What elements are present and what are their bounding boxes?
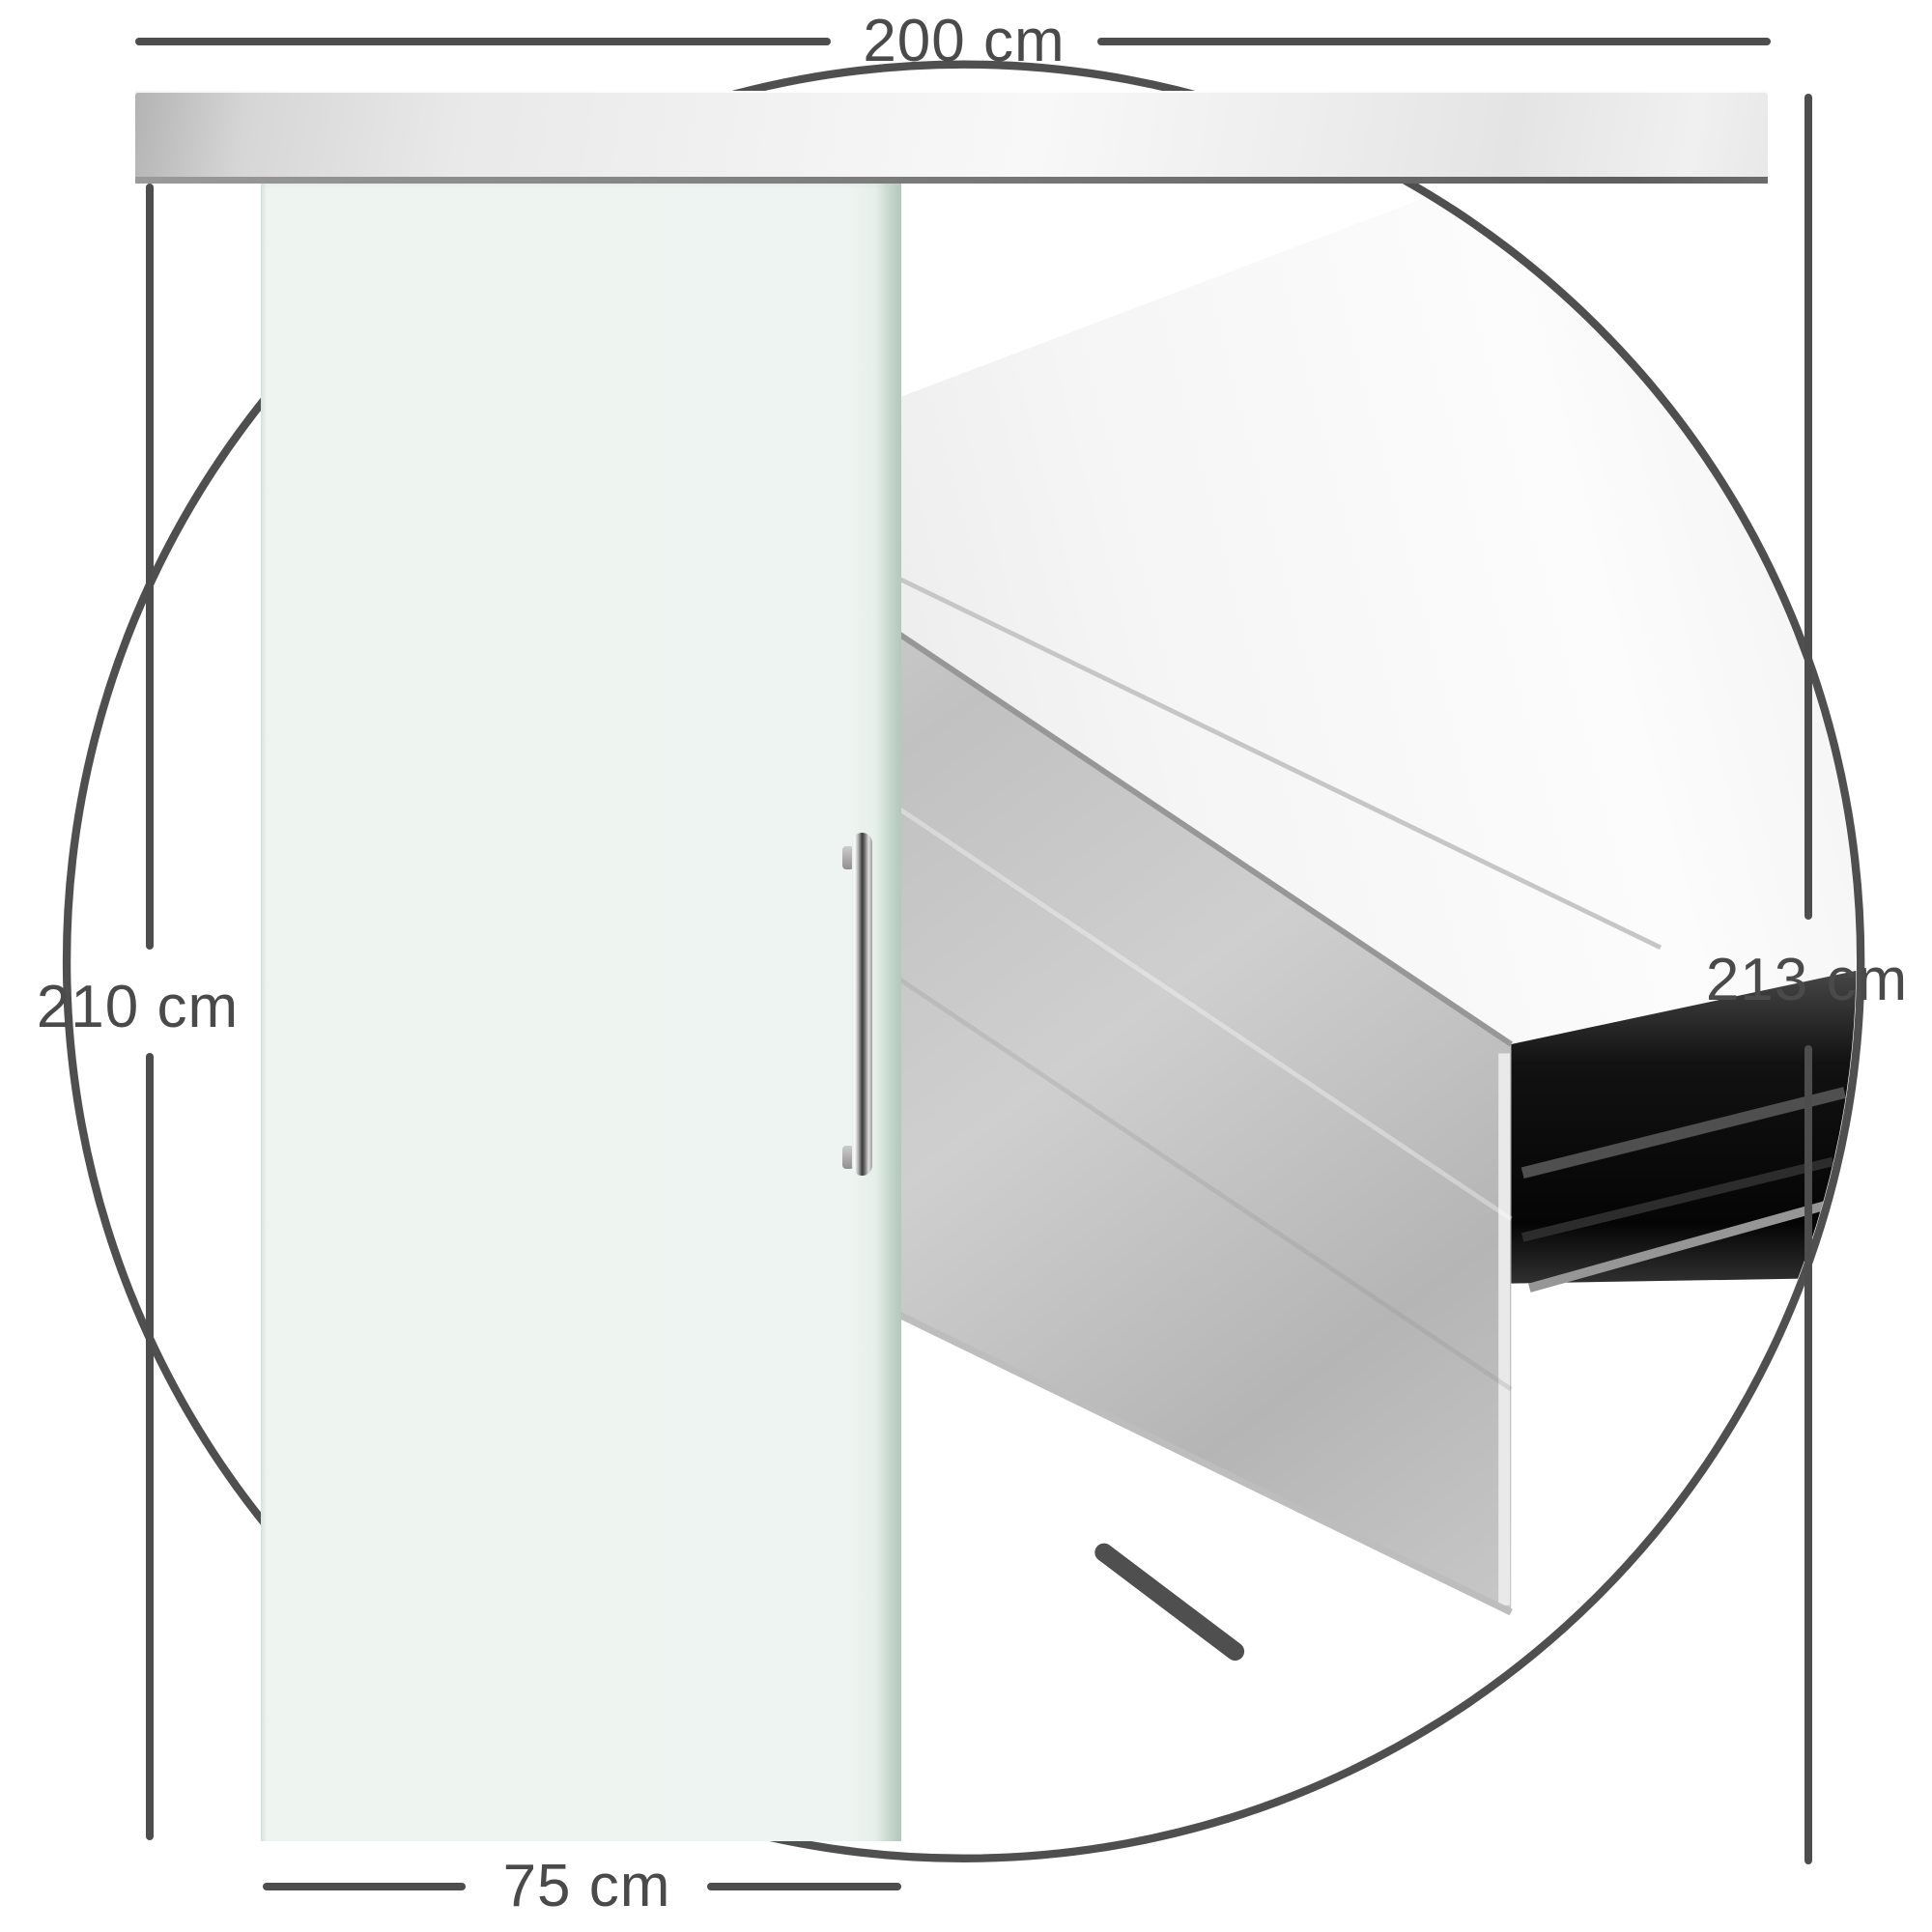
glass-door-panel [261,180,901,1841]
dim-door-height-label: 210 cm [29,976,246,1039]
product-dimension-diagram: 200 cm 210 cm 213 cm 75 cm [0,0,1932,1932]
dim-track-width-line-left [135,38,831,45]
dim-total-height-line-upper [1804,94,1812,920]
door-bar-handle [852,833,872,1176]
dim-total-height-line-lower [1804,1045,1812,1864]
dim-door-width-label: 75 cm [464,1855,710,1918]
sliding-track-rail [135,91,1768,184]
dim-track-width-line-right [1097,38,1771,45]
dim-door-height-line-lower [146,1053,154,1840]
rail-bottom-edge [135,177,1768,184]
dim-door-height-line-upper [146,184,154,950]
dim-total-height-label: 213 cm [1698,949,1916,1012]
dim-track-width-label: 200 cm [829,10,1099,73]
dim-door-width-line-right [707,1883,901,1890]
dim-door-width-line-left [263,1883,466,1890]
